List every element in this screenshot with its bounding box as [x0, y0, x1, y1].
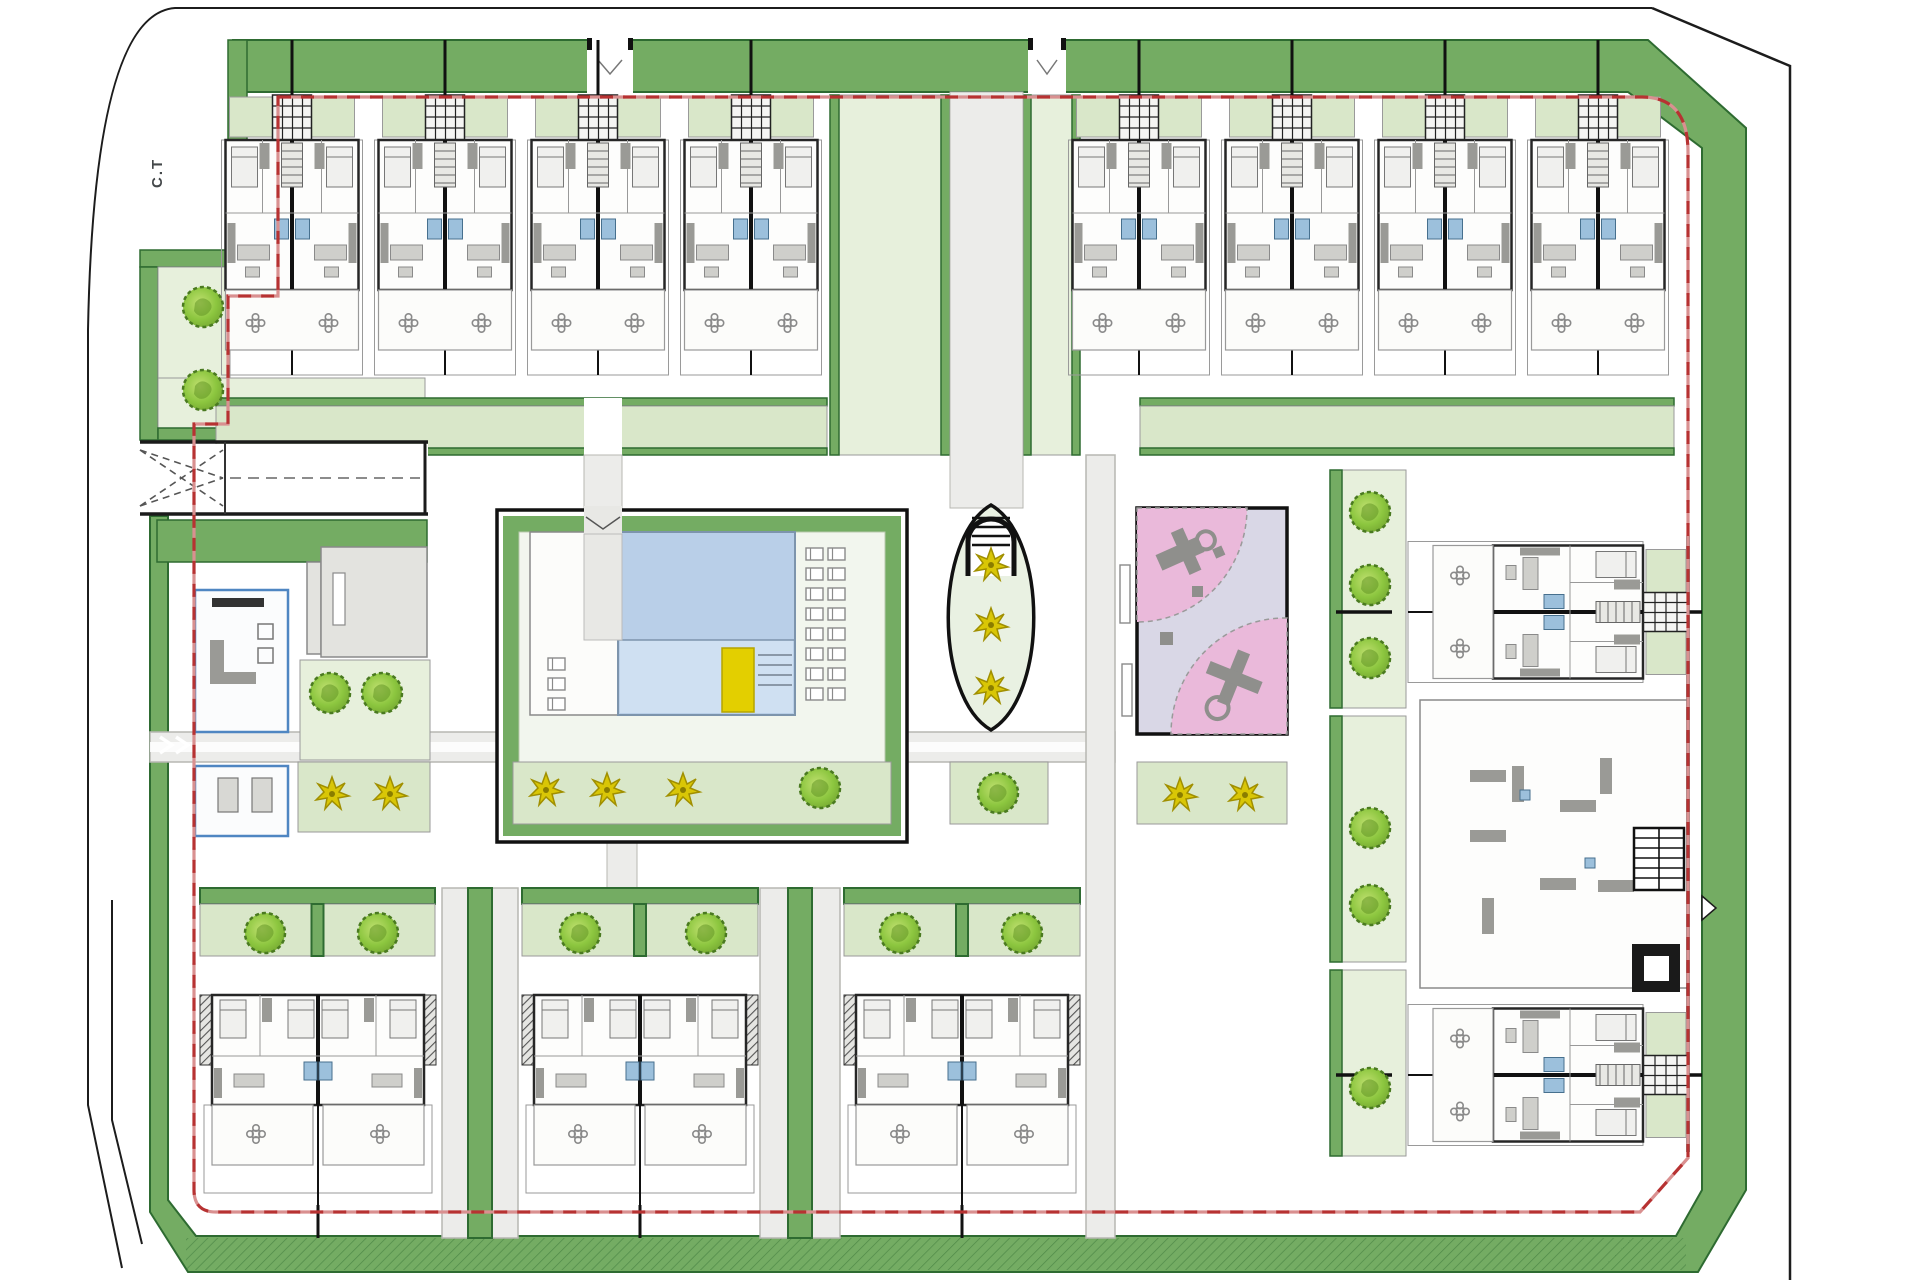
playground-bench — [1122, 664, 1132, 716]
sun-lounger — [828, 648, 845, 660]
stair-core — [1634, 828, 1684, 890]
sun-lounger — [828, 568, 845, 580]
house-pair-top-1 — [222, 95, 363, 375]
north-gate-a — [587, 36, 633, 96]
bottom-road-2 — [760, 888, 840, 1238]
house-pair-right-2 — [1408, 1005, 1688, 1146]
bottom-road-1 — [442, 888, 518, 1238]
bottom-planter-3 — [844, 888, 1080, 956]
north-south-road — [1086, 455, 1115, 1238]
playground-palm-planter — [1137, 762, 1287, 824]
sun-lounger — [806, 668, 823, 680]
sun-lounger — [806, 568, 823, 580]
club-palm-planter — [298, 762, 430, 832]
house-pair-top-2 — [375, 95, 516, 375]
sun-lounger — [806, 688, 823, 700]
playground-bench — [1120, 565, 1130, 623]
house-pair-top-8 — [1528, 95, 1669, 375]
central-walkway — [950, 92, 1023, 508]
sun-lounger — [806, 548, 823, 560]
tree-icon — [183, 287, 223, 327]
playground — [1120, 508, 1287, 824]
tree-icon — [183, 370, 223, 410]
storage-building — [307, 547, 427, 657]
sun-lounger — [828, 548, 845, 560]
tree-icon — [560, 913, 600, 953]
sun-lounger — [548, 678, 565, 690]
social-club-building — [195, 590, 288, 836]
sun-lounger — [828, 628, 845, 640]
sun-lounger — [828, 588, 845, 600]
sun-lounger — [806, 628, 823, 640]
house-pair-right-1 — [1408, 542, 1688, 683]
tree-icon — [310, 673, 350, 713]
tree-icon — [1350, 565, 1390, 605]
house-pair-top-6 — [1222, 95, 1363, 375]
tree-icon — [686, 913, 726, 953]
tree-icon — [1350, 492, 1390, 532]
tree-icon — [1350, 638, 1390, 678]
tree-icon — [800, 768, 840, 808]
house-pair-top-4 — [681, 95, 822, 375]
tree-icon — [362, 673, 402, 713]
house-pair-bottom-3 — [844, 995, 1080, 1238]
site-plan-canvas: C.T — [0, 0, 1920, 1280]
bottom-row-planters — [200, 888, 1080, 956]
right-garden-strip-3 — [1330, 970, 1406, 1156]
tree-icon — [978, 773, 1018, 813]
entrance-road — [140, 442, 428, 514]
sun-lounger — [828, 668, 845, 680]
tree-icon — [880, 913, 920, 953]
right-block-common-section — [1420, 700, 1688, 992]
house-pair-top-3 — [528, 95, 669, 375]
tree-icon — [1350, 885, 1390, 925]
south-walkway-stub — [607, 842, 637, 888]
bottom-planter-1 — [200, 888, 435, 956]
master-plan-drawing: C.T — [0, 0, 1920, 1280]
house-pair-top-5 — [1069, 95, 1210, 375]
tree-icon — [358, 913, 398, 953]
sun-lounger — [828, 608, 845, 620]
sun-lounger — [806, 588, 823, 600]
tree-icon — [1350, 1068, 1390, 1108]
swimming-pool — [618, 532, 795, 715]
house-pair-bottom-2 — [522, 995, 758, 1238]
sun-lounger — [806, 648, 823, 660]
sun-lounger — [548, 658, 565, 670]
house-pair-top-7 — [1375, 95, 1516, 375]
pool-platform-yellow — [722, 648, 754, 712]
tree-icon — [1002, 913, 1042, 953]
north-gate-b — [1028, 36, 1066, 96]
sun-lounger — [548, 698, 565, 710]
sun-lounger — [828, 688, 845, 700]
sun-lounger — [806, 608, 823, 620]
house-pair-bottom-1 — [200, 995, 436, 1238]
tree-icon — [1350, 808, 1390, 848]
transformer-label: C.T — [149, 158, 166, 188]
tree-icon — [245, 913, 285, 953]
